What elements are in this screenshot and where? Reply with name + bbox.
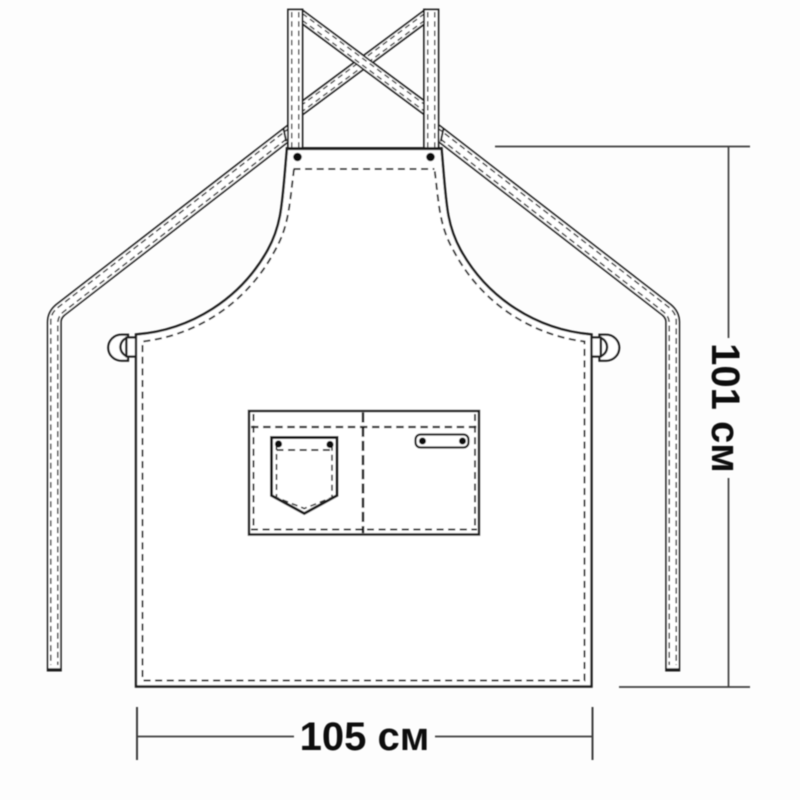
svg-text:101 см: 101 см (703, 343, 747, 473)
svg-text:105 см: 105 см (300, 715, 430, 759)
